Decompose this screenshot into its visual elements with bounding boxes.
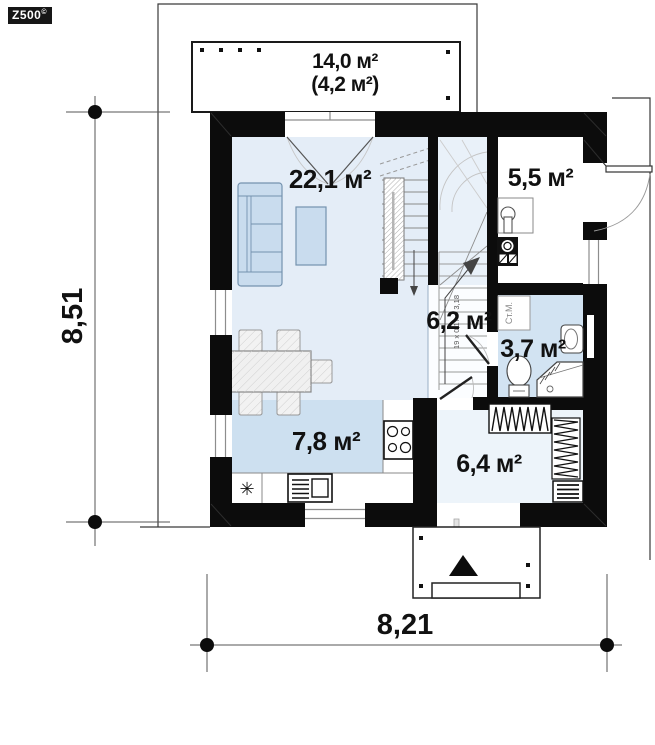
- boiler-room-label: 5,5 м²: [493, 165, 588, 193]
- porch-step: [432, 583, 520, 598]
- fridge-icon: ✳: [239, 479, 254, 500]
- porch: [413, 527, 540, 598]
- dimension-width: 8,21: [345, 610, 465, 642]
- bath-vent-slot: [587, 315, 594, 358]
- plan-drawing: 19 x 0,17 = 3,18: [0, 0, 655, 745]
- kitchen-label: 7,8 м²: [272, 427, 380, 456]
- copyright-mark: ©: [41, 9, 47, 16]
- bathroom-label: 3,7 м²: [487, 336, 579, 364]
- kitchen-window: [305, 503, 365, 527]
- washing-machine-label: Ст.М.: [504, 302, 514, 324]
- stove: [384, 421, 413, 459]
- living-room-label: 22,1 м²: [265, 165, 395, 194]
- terrace-area: 14,0 м²: [230, 50, 460, 73]
- terrace-label: 14,0 м² (4,2 м²): [230, 50, 460, 96]
- right-window: [583, 240, 607, 284]
- entry-door-opening: [437, 503, 520, 527]
- sofa: [238, 183, 282, 286]
- floor-plan: 19 x 0,17 = 3,18: [0, 0, 655, 745]
- entry-label: 6,4 м²: [443, 451, 535, 479]
- shoe-cabinet: [553, 481, 583, 502]
- boiler-unit-icon: [497, 237, 518, 266]
- kitchen-sink: [288, 474, 332, 502]
- hall-label: 6,2 м²: [413, 308, 505, 336]
- brand-logo: Z500©: [8, 7, 52, 24]
- terrace-area-secondary: (4,2 м²): [230, 73, 460, 96]
- wardrobe-right: [552, 418, 580, 479]
- wardrobe-top: [489, 404, 551, 433]
- dimension-height: 8,51: [58, 256, 98, 376]
- brand-logo-text: Z500: [12, 8, 41, 22]
- left-window-2: [210, 415, 232, 457]
- coffee-table: [296, 207, 326, 265]
- left-window-1: [210, 290, 232, 335]
